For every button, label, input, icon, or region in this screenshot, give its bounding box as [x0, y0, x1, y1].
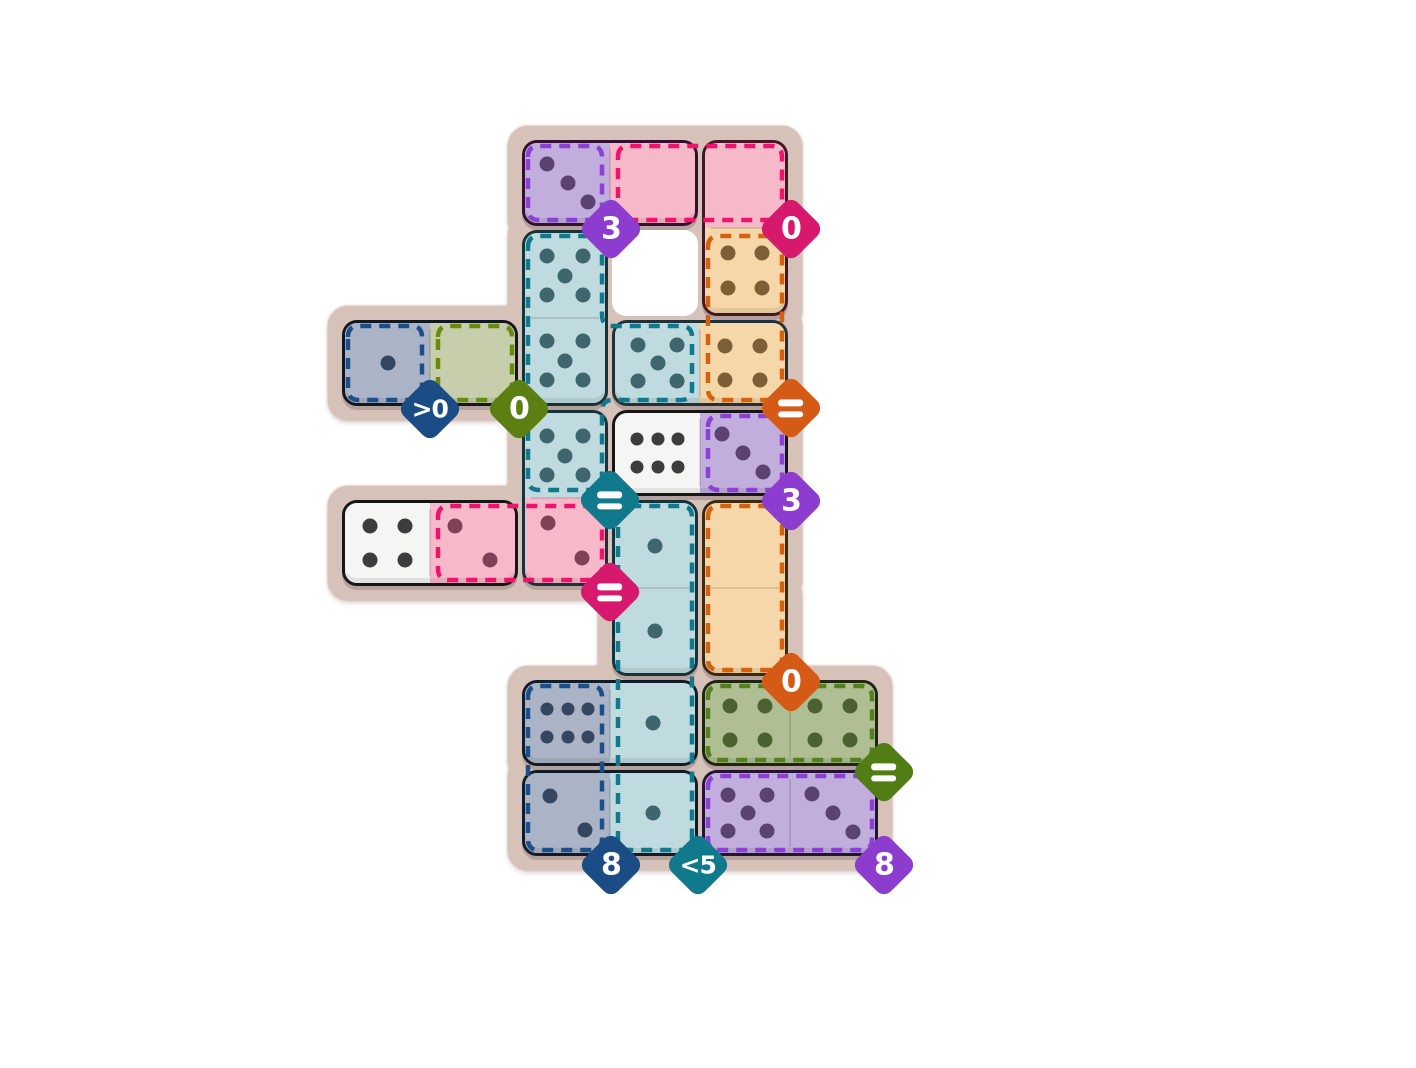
badge-layer: 30>00308<58 [0, 0, 1416, 1068]
badge-label: 0 [781, 214, 801, 244]
constraint-badge-olive-sum-0: 0 [486, 376, 552, 442]
constraint-badge-green-all-equal [851, 739, 917, 805]
badge-label: 8 [601, 850, 621, 880]
badge-label: >0 [412, 397, 448, 422]
constraint-badge-navy-sum-8: 8 [578, 832, 644, 898]
constraint-badge-pink-sum-0: 0 [758, 196, 824, 262]
badge-label: 8 [874, 850, 894, 880]
constraint-badge-navy-greater-0: >0 [397, 376, 463, 442]
badge-label: 0 [509, 394, 529, 424]
equal-sign-icon [598, 491, 623, 509]
badge-label: 3 [781, 486, 801, 516]
constraint-badge-purple-sum-8: 8 [851, 832, 917, 898]
badge-label: 0 [781, 667, 801, 697]
badge-label: <5 [680, 853, 716, 878]
equal-sign-icon [872, 763, 897, 781]
badge-label: 3 [601, 214, 621, 244]
constraint-badge-purple-sum-3: 3 [578, 196, 644, 262]
equal-sign-icon [598, 583, 623, 601]
pips-puzzle-board: 30>00308<58 [0, 0, 1416, 1068]
constraint-badge-pink-all-equal [577, 559, 643, 625]
constraint-badge-purple-sum-3b: 3 [758, 468, 824, 534]
equal-sign-icon [779, 399, 804, 417]
constraint-badge-teal-less-5: <5 [665, 832, 731, 898]
constraint-badge-tan-sum-0: 0 [758, 649, 824, 715]
constraint-badge-tan-all-equal [758, 375, 824, 441]
constraint-badge-teal-all-equal [577, 467, 643, 533]
